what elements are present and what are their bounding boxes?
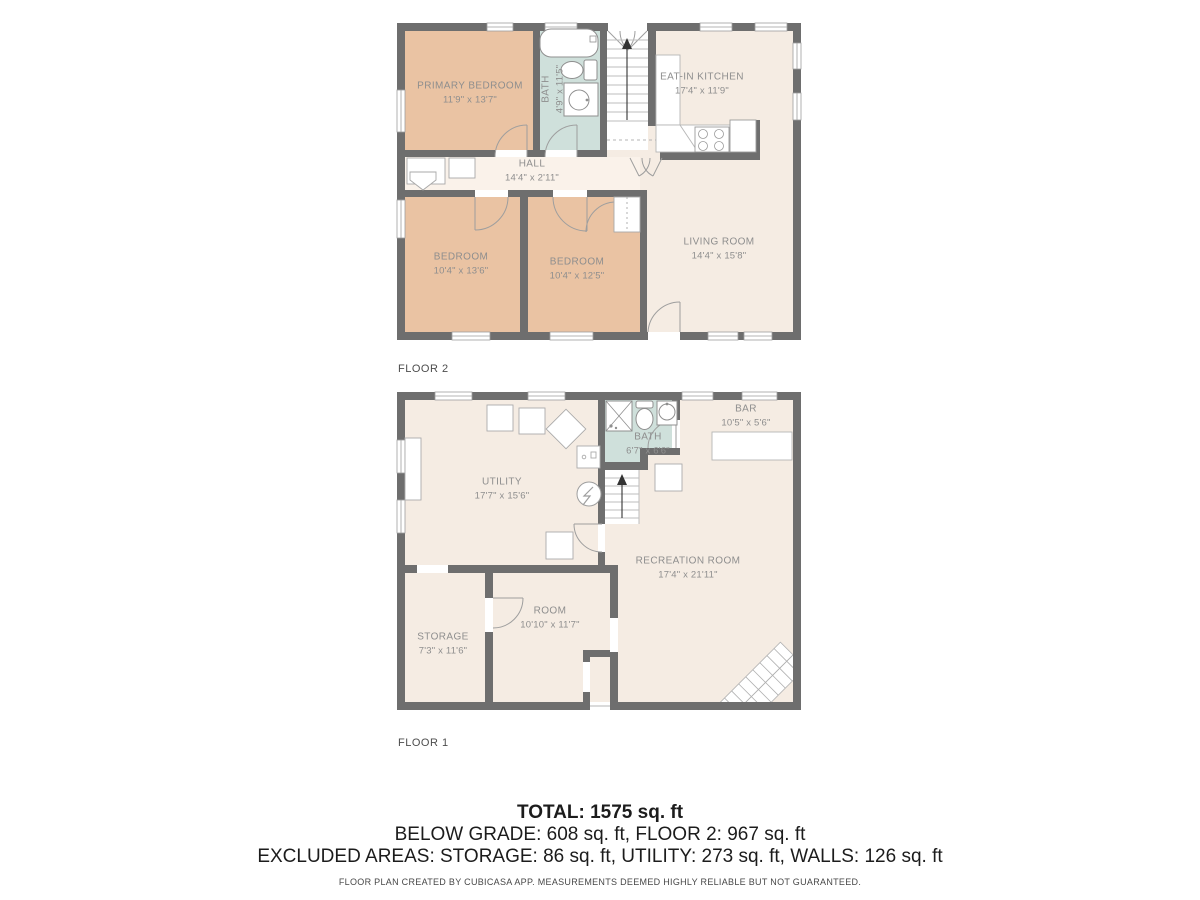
freezer-icon [655,464,682,491]
washer-icon [487,405,513,431]
floor-1-label: FLOOR 1 [398,737,449,749]
room-label-storage: STORAGE 7'3" x 11'6" [417,631,469,658]
room-label-eat-in-kitchen: EAT-IN KITCHEN 17'4" x 11'9" [660,71,744,98]
dryer-icon [519,408,545,434]
counter [405,438,421,500]
room-label-room: ROOM 10'10" x 11'7" [520,605,579,632]
stove-icon [695,127,729,152]
disclaimer-text: FLOOR PLAN CREATED BY CUBICASA APP. MEAS… [0,877,1200,887]
room-label-primary-bedroom: PRIMARY BEDROOM 11'9" x 13'7" [417,80,523,107]
floor-1-plan [397,392,806,730]
room-label-bedroom-left: BEDROOM 10'4" x 13'6" [434,251,489,278]
sink-icon [564,83,598,116]
area-summary: TOTAL: 1575 sq. ft BELOW GRADE: 608 sq. … [0,802,1200,868]
closet [614,197,640,232]
room-label-bath-floor2: BATH 4'9" x 11'5" [540,65,567,114]
room-label-recreation-room: RECREATION ROOM 17'4" x 21'11" [636,555,741,582]
water-heater-icon [577,446,600,468]
bathtub-icon [540,29,598,57]
total-area-text: TOTAL: 1575 sq. ft [0,802,1200,824]
shower-icon [606,401,632,431]
room-label-utility: UTILITY 17'7" x 15'6" [475,476,530,503]
below-grade-text: BELOW GRADE: 608 sq. ft, FLOOR 2: 967 sq… [0,824,1200,846]
refrigerator-icon [730,120,756,152]
room-label-hall: HALL 14'4" x 2'11" [505,158,559,185]
room-label-living-room: LIVING ROOM 14'4" x 15'8" [683,236,754,263]
room-label-bath-floor1: BATH 6'7" x 6'6" [626,431,670,458]
floor-plans-drawing [0,0,1200,900]
sink-icon [657,401,677,425]
room-label-bedroom-middle: BEDROOM 10'4" x 12'5" [550,256,605,283]
floor-2-label: FLOOR 2 [398,363,449,375]
bar-counter [712,432,792,460]
toilet-icon [636,401,653,430]
floor-plan-page: PRIMARY BEDROOM 11'9" x 13'7" BATH 4'9" … [0,0,1200,900]
room-label-bar: BAR 10'5" x 5'6" [721,403,770,430]
electrical-panel-icon [577,482,601,506]
excluded-areas-text: EXCLUDED AREAS: STORAGE: 86 sq. ft, UTIL… [0,846,1200,868]
